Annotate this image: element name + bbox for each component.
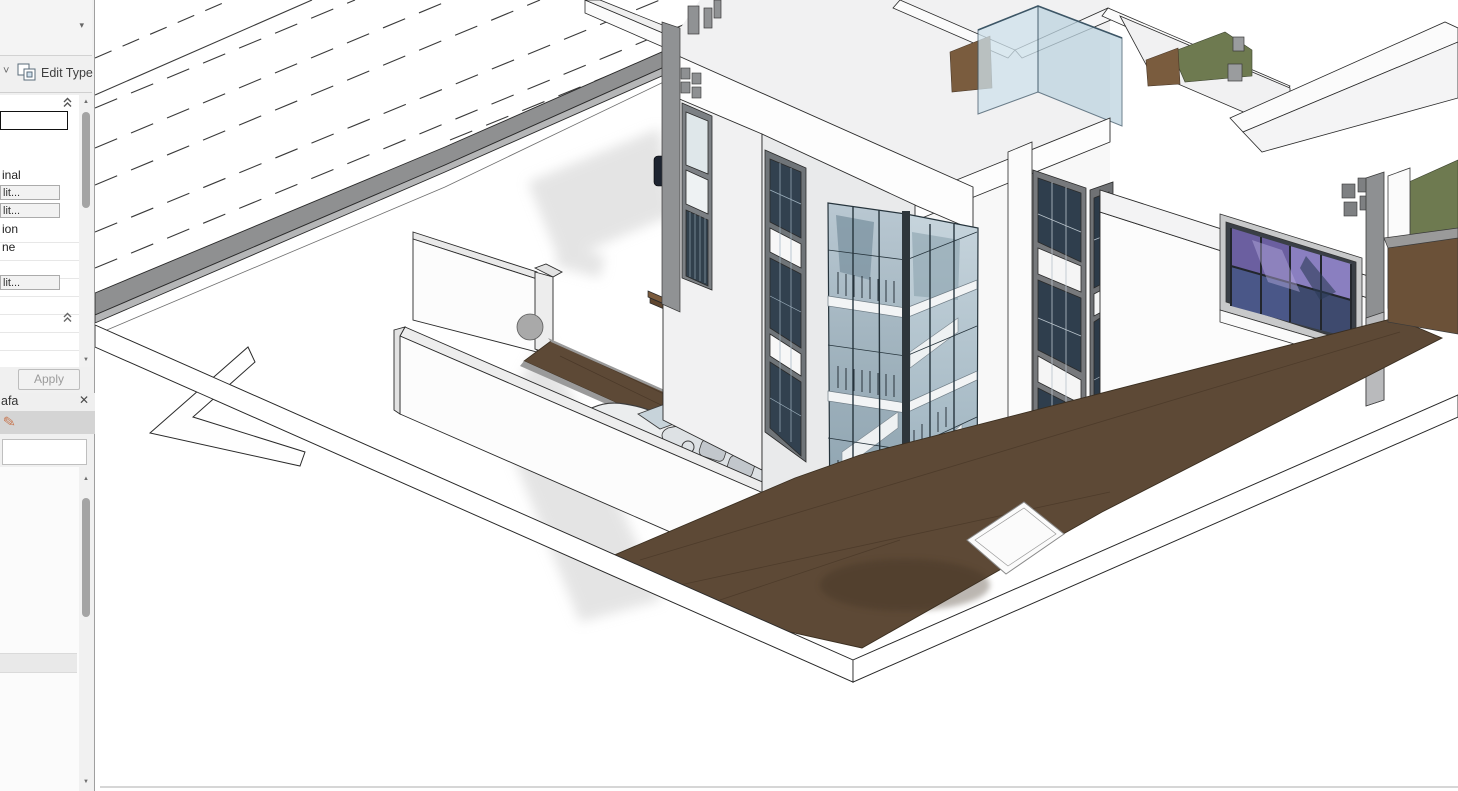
shrub — [517, 314, 543, 340]
pin-icon[interactable]: ✎ — [2, 412, 17, 432]
properties-palette: ▾ ˅ Edit Type inal lit... lit... ion ne … — [0, 0, 95, 791]
apply-button[interactable]: Apply — [18, 369, 80, 390]
revit-window: ▾ ˅ Edit Type inal lit... lit... ion ne … — [0, 0, 1458, 791]
edit-button[interactable]: lit... — [0, 185, 60, 200]
property-value-editor[interactable] — [0, 111, 68, 130]
scroll-up-icon[interactable]: ▲ — [79, 472, 93, 486]
property-value: ne — [2, 238, 15, 256]
right-edge-terrace — [1384, 228, 1458, 334]
tower-left-window-strip — [682, 103, 712, 290]
collapse-chevrons-icon[interactable] — [62, 97, 73, 108]
browser-search-input[interactable] — [2, 439, 87, 465]
edit-type-icon[interactable] — [17, 63, 38, 85]
3d-view-canvas[interactable] — [0, 0, 1458, 791]
dropdown-arrow-icon[interactable]: ▾ — [79, 20, 84, 31]
edit-button[interactable]: lit... — [0, 275, 60, 290]
chevron-down-icon[interactable]: ˅ — [3, 65, 9, 77]
scrollbar-thumb[interactable] — [82, 498, 90, 617]
properties-grid: inal lit... lit... ion ne lit... — [0, 95, 79, 367]
tower-front-window-strip — [765, 150, 806, 462]
edit-type-row: ˅ Edit Type — [0, 56, 92, 93]
edit-button[interactable]: lit... — [0, 203, 60, 218]
type-selector-dropdown[interactable]: ▾ — [0, 0, 92, 56]
scrollbar-thumb[interactable] — [82, 112, 90, 208]
browser-panel-toolbar: ✎ — [0, 411, 95, 434]
section-collapse-icon[interactable] — [62, 312, 73, 323]
browser-scrollbar[interactable]: ▲ ▼ — [79, 470, 93, 791]
scroll-up-icon[interactable]: ▲ — [79, 95, 93, 109]
scroll-down-icon[interactable]: ▼ — [79, 353, 93, 367]
property-value: ion — [2, 220, 18, 238]
edit-type-button[interactable]: Edit Type — [41, 66, 93, 80]
properties-scrollbar[interactable]: ▲ ▼ — [79, 95, 93, 367]
browser-list-row[interactable] — [0, 653, 77, 673]
browser-list-area[interactable] — [0, 467, 79, 791]
scroll-down-icon[interactable]: ▼ — [79, 775, 93, 789]
property-value: inal — [2, 166, 21, 184]
browser-panel-header: afa ✕ — [0, 393, 95, 412]
browser-panel-title: afa — [1, 394, 18, 408]
close-icon[interactable]: ✕ — [79, 393, 89, 407]
